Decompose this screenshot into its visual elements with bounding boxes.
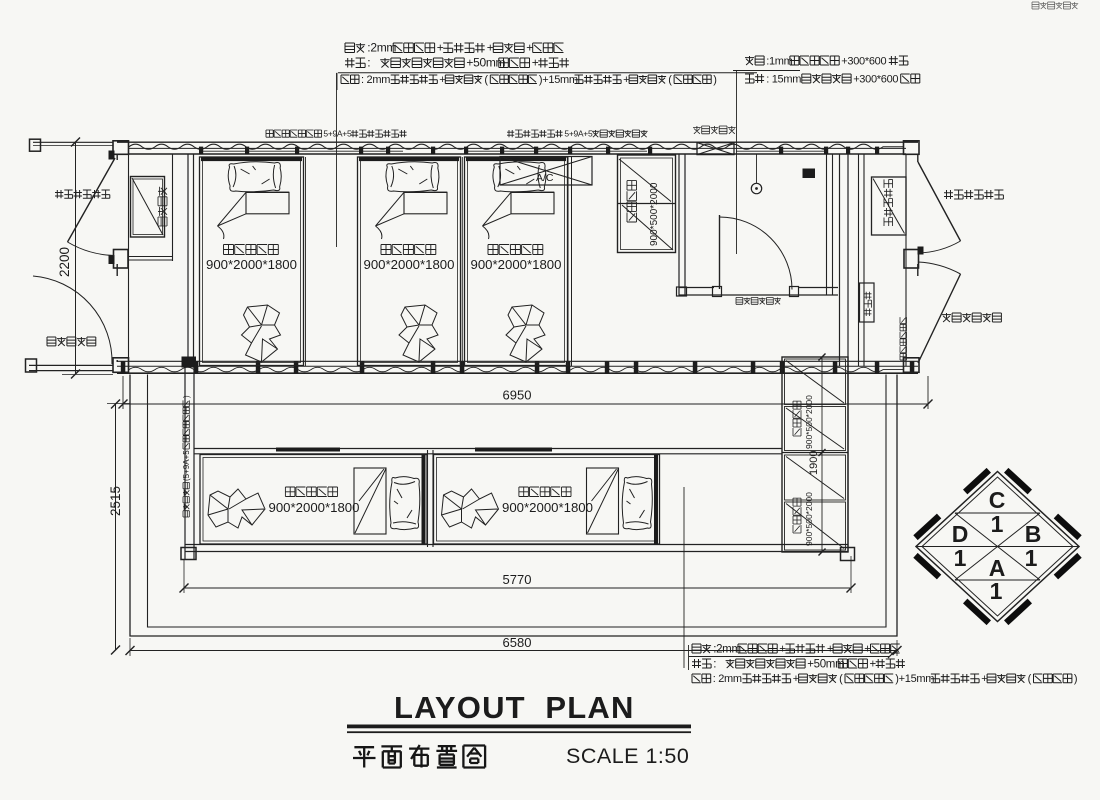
svg-text:5+9A+5: 5+9A+5 — [323, 129, 352, 139]
svg-text::: : — [713, 658, 716, 670]
svg-text:5770: 5770 — [503, 572, 532, 587]
svg-text:900*500*2000: 900*500*2000 — [804, 395, 814, 449]
svg-text:+: + — [526, 41, 533, 55]
svg-text:SCALE 1:50: SCALE 1:50 — [566, 744, 689, 768]
svg-text:900*2000*1800: 900*2000*1800 — [471, 257, 562, 272]
svg-text:+: + — [870, 658, 877, 670]
svg-text:+: + — [532, 56, 539, 70]
svg-text:+50mm: +50mm — [466, 56, 505, 70]
svg-text:+300*600: +300*600 — [841, 55, 886, 67]
svg-text:+: + — [981, 673, 987, 685]
svg-text:+: + — [793, 673, 799, 685]
svg-text:1: 1 — [954, 545, 967, 571]
svg-text:900*2000*1800: 900*2000*1800 — [206, 257, 297, 272]
svg-text:(5+9A+5: (5+9A+5 — [182, 450, 191, 481]
svg-text:+: + — [864, 643, 871, 655]
svg-text:900*2000*1800: 900*2000*1800 — [502, 500, 593, 515]
svg-text:D: D — [952, 521, 969, 547]
svg-text:1: 1 — [990, 578, 1003, 604]
svg-text:+300*600: +300*600 — [853, 73, 898, 85]
svg-text:1: 1 — [991, 511, 1004, 537]
svg-text:6950: 6950 — [503, 388, 532, 403]
svg-text::2mm: :2mm — [367, 41, 396, 55]
svg-text:A/C: A/C — [536, 172, 554, 184]
svg-text:2515: 2515 — [108, 486, 123, 516]
svg-text:+50mm: +50mm — [807, 658, 844, 670]
svg-text:): ) — [1074, 673, 1077, 685]
svg-text:2200: 2200 — [57, 247, 72, 277]
svg-text:: 2mm: : 2mm — [713, 673, 742, 685]
svg-text:): ) — [713, 74, 716, 86]
svg-text:6580: 6580 — [503, 635, 532, 650]
svg-text::1mm: :1mm — [766, 55, 792, 67]
svg-text:): ) — [182, 395, 191, 398]
svg-text:5+9A+5: 5+9A+5 — [564, 129, 593, 139]
svg-text:900*500*2000: 900*500*2000 — [649, 182, 660, 246]
svg-text:: 15mm: : 15mm — [766, 73, 801, 85]
svg-text:+: + — [827, 643, 834, 655]
svg-text::2mm: :2mm — [713, 643, 741, 655]
svg-text:)+15mm: )+15mm — [895, 673, 934, 685]
svg-text::: : — [367, 56, 370, 70]
svg-text:1900: 1900 — [808, 451, 820, 475]
svg-text:900*2000*1800: 900*2000*1800 — [269, 500, 360, 515]
svg-text:+: + — [439, 74, 445, 86]
svg-text:LAYOUT PLAN: LAYOUT PLAN — [394, 690, 635, 725]
svg-text:+: + — [623, 74, 629, 86]
svg-text:1: 1 — [1025, 545, 1038, 571]
svg-text:+: + — [779, 643, 786, 655]
svg-text:+: + — [437, 41, 444, 55]
svg-text:900*500*2000: 900*500*2000 — [804, 492, 814, 546]
svg-text:+: + — [487, 41, 494, 55]
svg-text:900*2000*1800: 900*2000*1800 — [364, 257, 455, 272]
svg-text:)+15mm: )+15mm — [539, 74, 578, 86]
svg-text:C: C — [989, 487, 1006, 513]
svg-text:B: B — [1025, 521, 1042, 547]
svg-text:: 2mm: : 2mm — [361, 74, 390, 86]
